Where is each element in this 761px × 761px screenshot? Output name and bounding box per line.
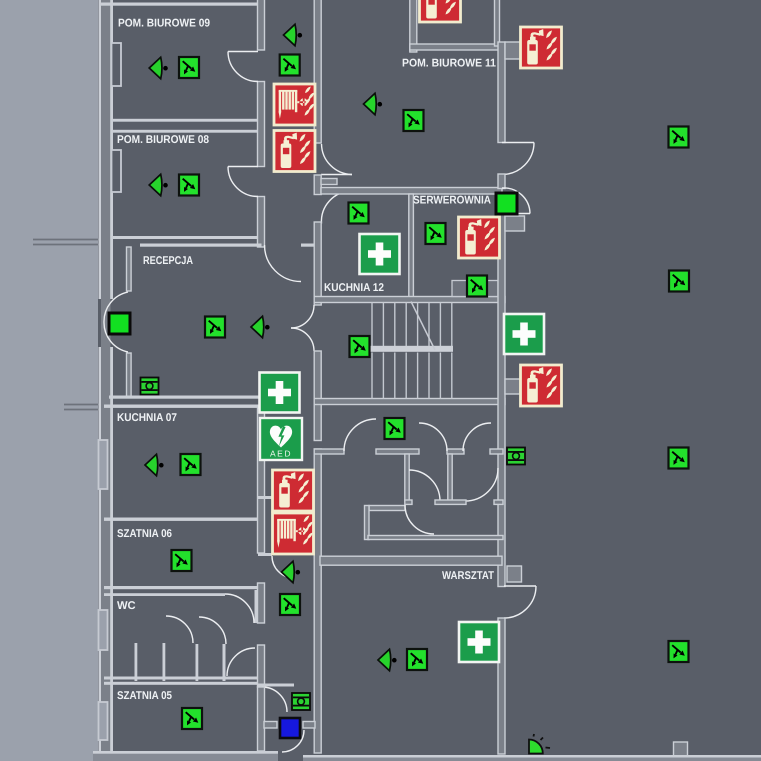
svg-text:SERWEROWNIA: SERWEROWNIA xyxy=(413,195,491,207)
svg-text:POM. BIUROWE 09: POM. BIUROWE 09 xyxy=(118,18,210,30)
svg-text:RECEPCJA: RECEPCJA xyxy=(143,255,193,267)
svg-text:KUCHNIA 12: KUCHNIA 12 xyxy=(324,282,384,294)
svg-text:WARSZTAT: WARSZTAT xyxy=(442,570,494,582)
svg-text:POM. BIUROWE 08: POM. BIUROWE 08 xyxy=(117,134,209,146)
svg-text:KUCHNIA 07: KUCHNIA 07 xyxy=(117,412,177,424)
svg-text:POM. BIUROWE 11: POM. BIUROWE 11 xyxy=(402,58,496,70)
svg-text:SZATNIA 06: SZATNIA 06 xyxy=(117,528,172,540)
svg-text:SZATNIA 05: SZATNIA 05 xyxy=(117,690,172,702)
svg-text:WC: WC xyxy=(117,600,136,612)
